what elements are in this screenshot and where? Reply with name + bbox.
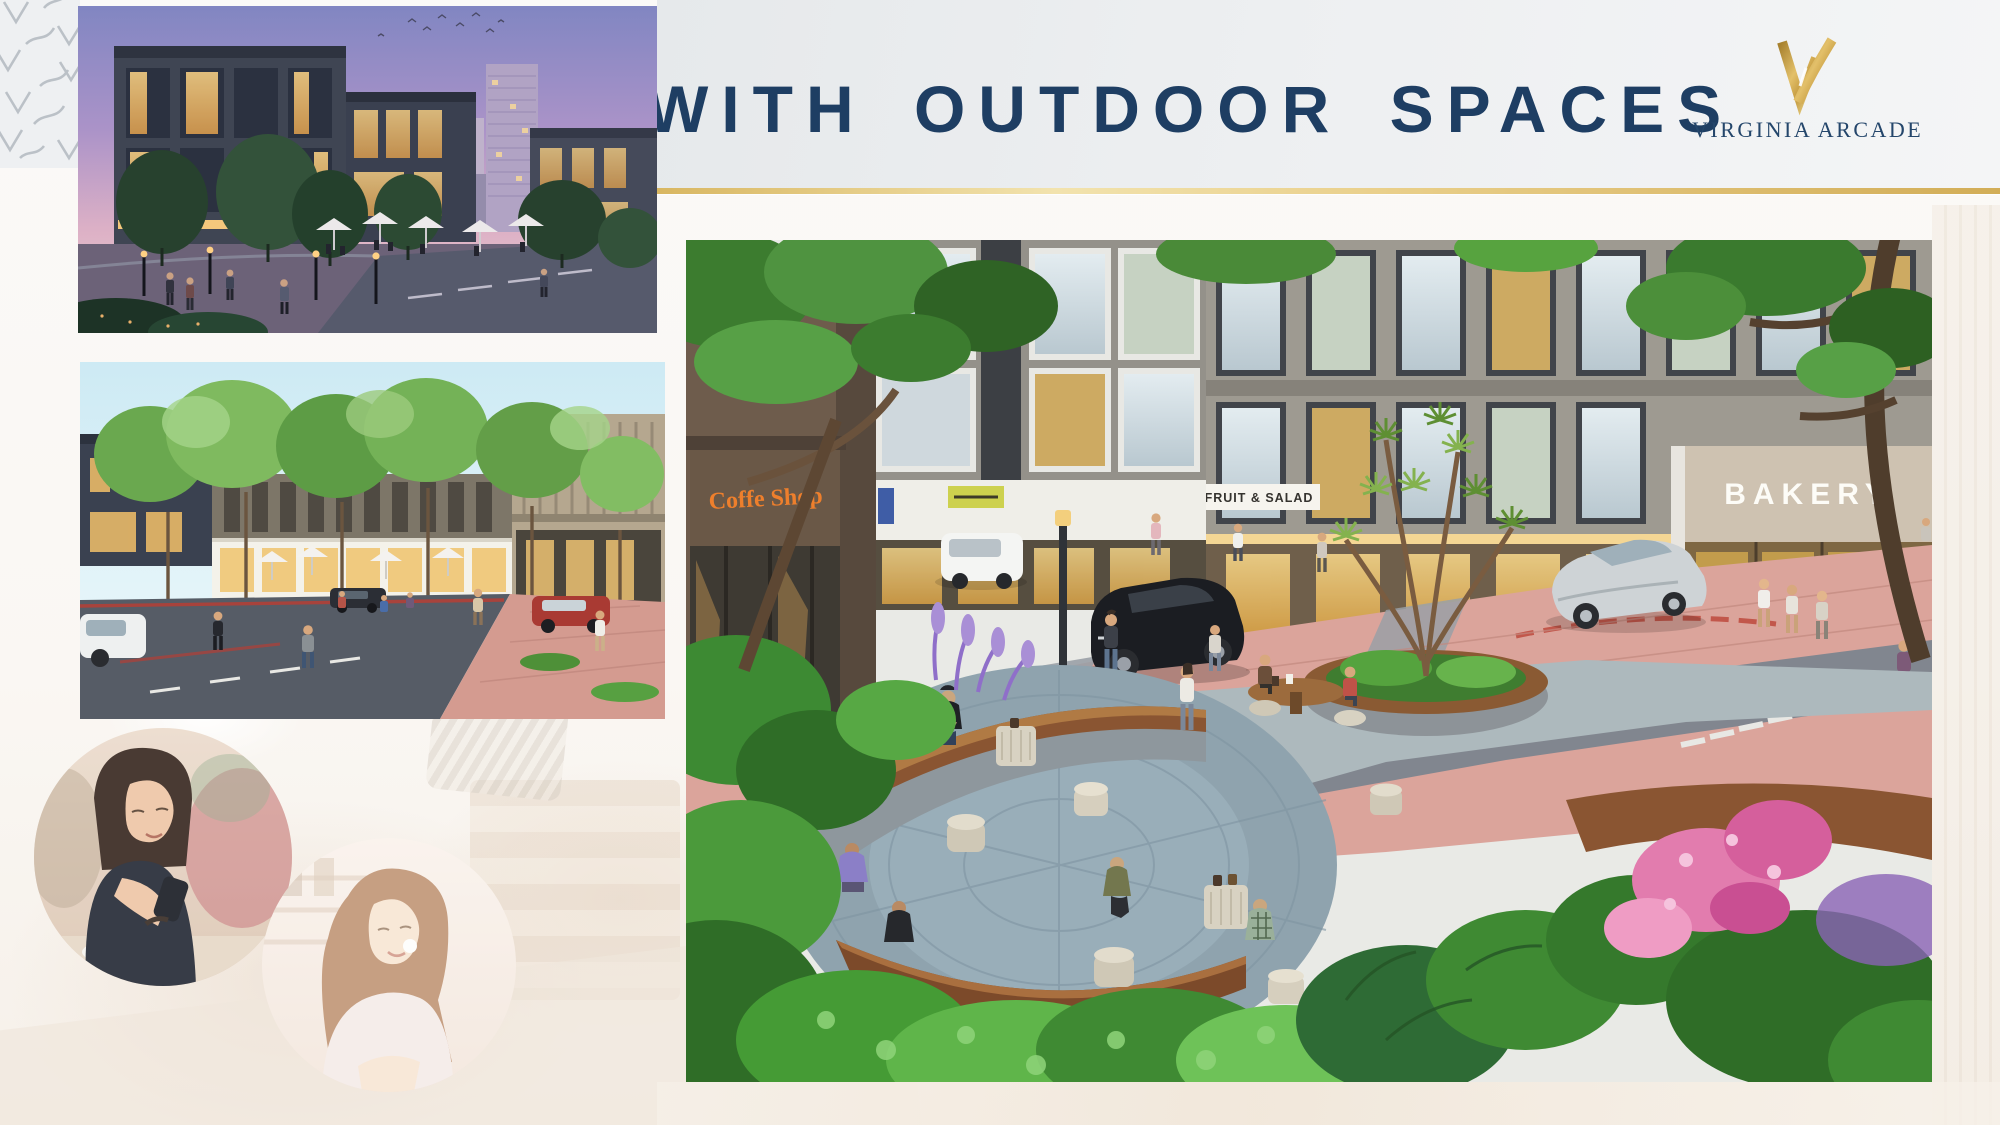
- day-street-render: [80, 362, 665, 719]
- faded-right-strip: [1932, 205, 2000, 1125]
- va-monogram-icon: [1760, 30, 1852, 116]
- gold-divider: [650, 188, 2000, 194]
- fruit-salad-sign: FRUIT & SALAD: [1205, 491, 1314, 505]
- brand-pattern-watermark: [0, 0, 80, 168]
- photo-circle-woman-phone: [34, 728, 292, 986]
- plaza-render: FRUIT & SALAD BAKERY: [686, 240, 1932, 1082]
- brand-logo: VIRGINIA ARCADE: [1692, 30, 1920, 143]
- white-van: [935, 533, 1027, 590]
- faded-bottom-strip: [657, 1082, 2000, 1125]
- photo-circle-woman-smiling: [262, 838, 516, 1092]
- blue-shop-sign: [878, 488, 894, 524]
- smiling-woman-photo: [262, 838, 516, 1092]
- bakery-sign: BAKERY: [1724, 478, 1892, 511]
- brand-name: VIRGINIA ARCADE: [1692, 117, 1920, 143]
- presentation-slide: WITH OUTDOOR SPACES VIRGINIA ARCADE: [0, 0, 2000, 1125]
- dusk-street-render: [78, 6, 657, 333]
- slide-title: WITH OUTDOOR SPACES: [646, 76, 1734, 142]
- woman-with-phone-photo: [34, 728, 292, 986]
